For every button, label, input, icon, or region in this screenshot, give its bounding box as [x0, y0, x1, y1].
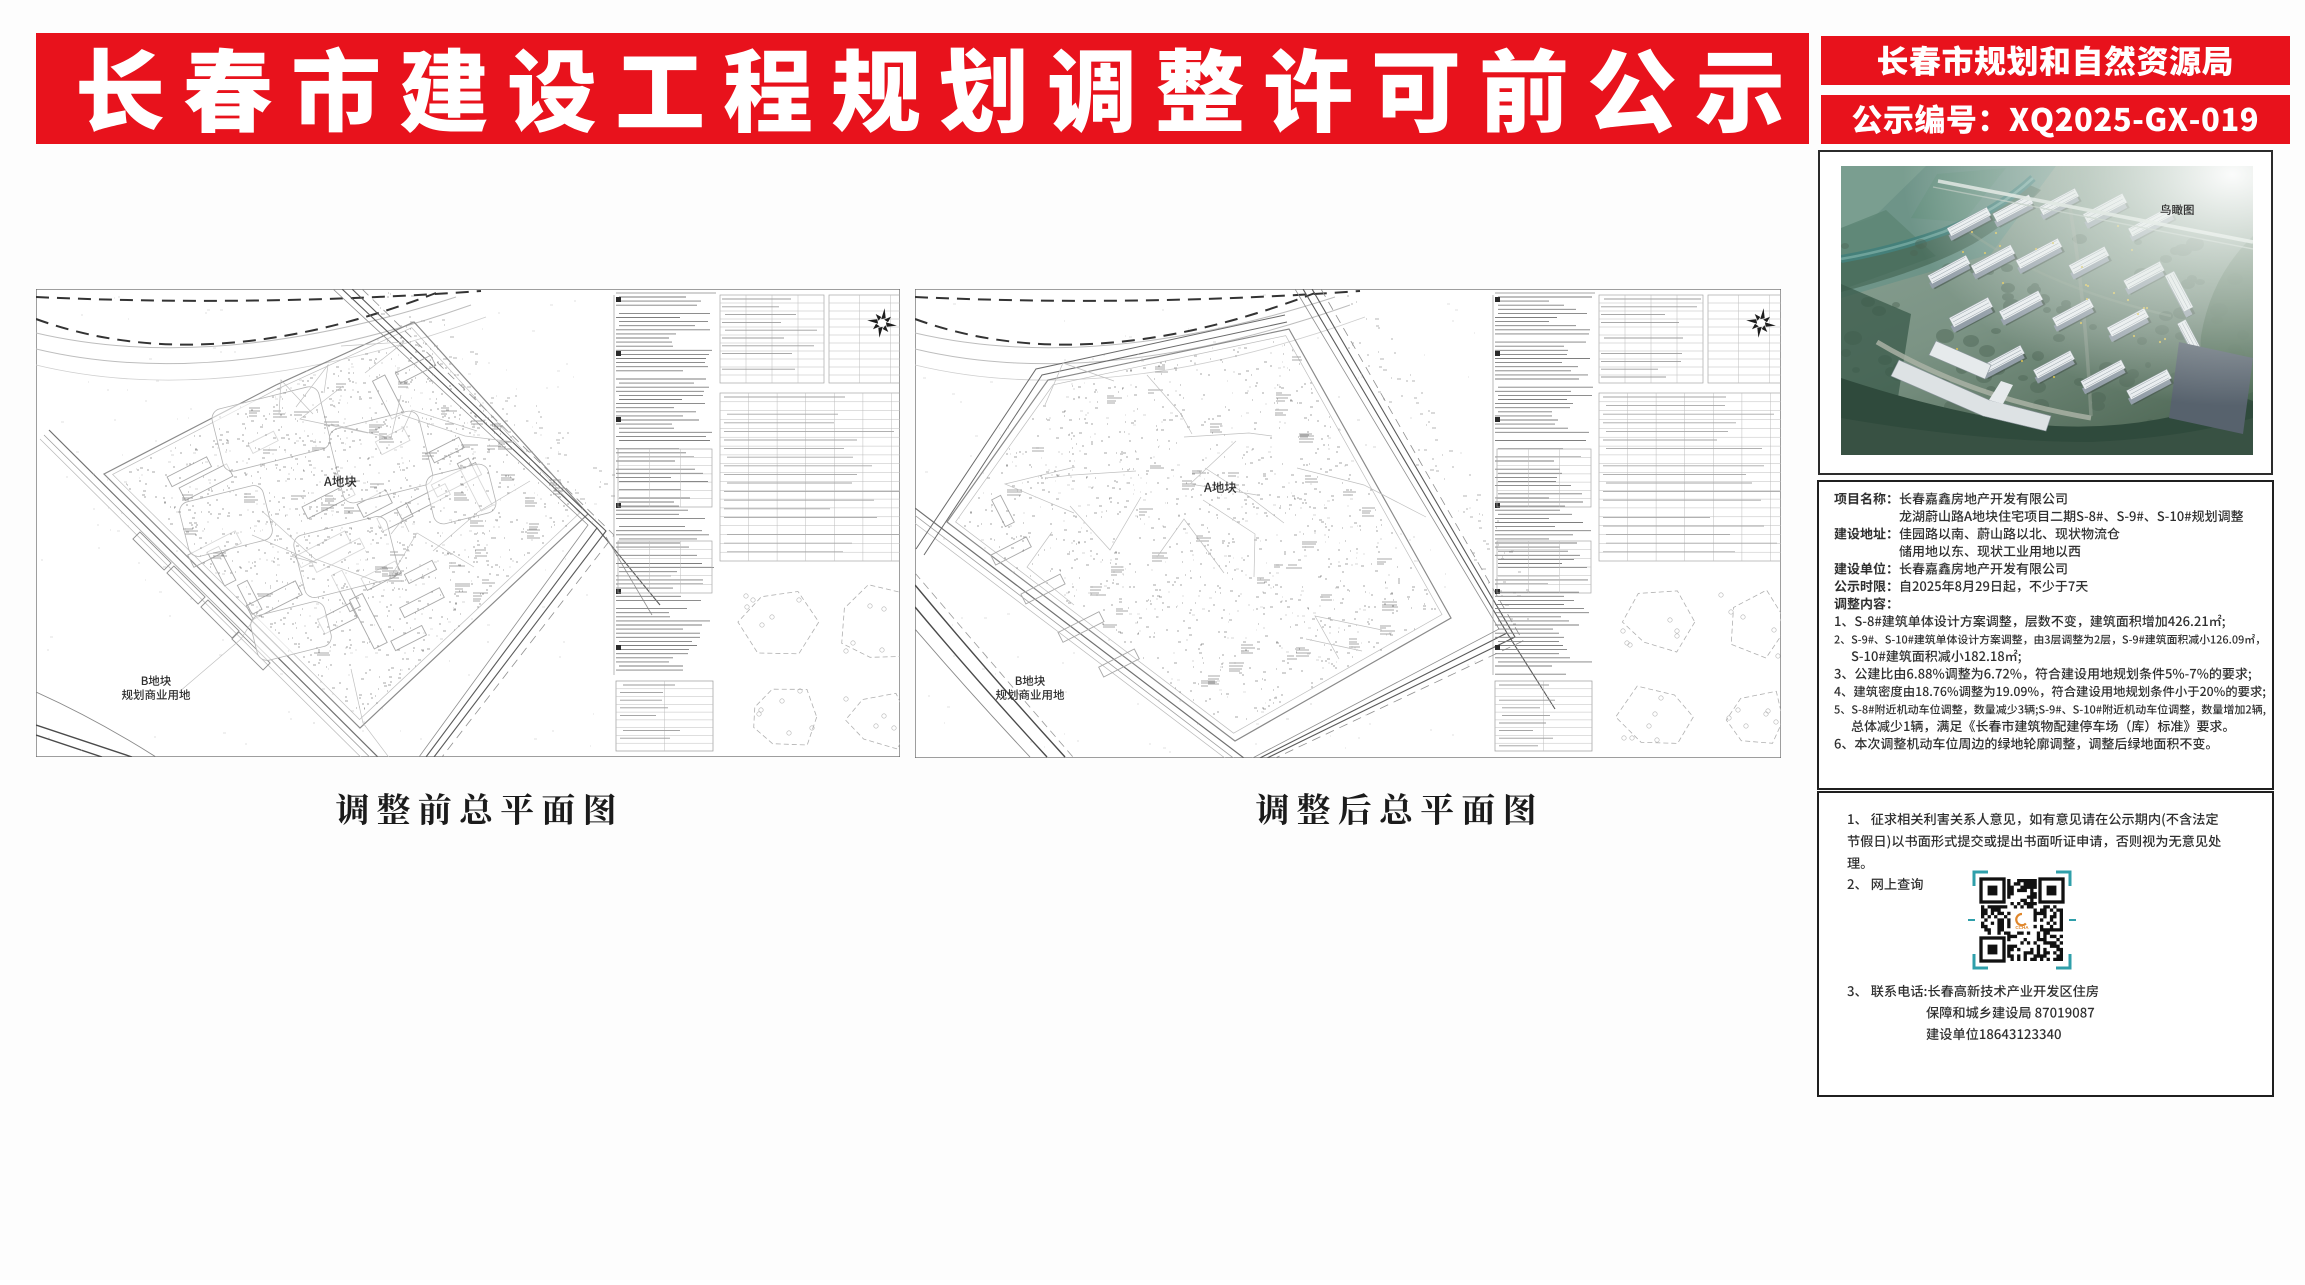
- svg-text:CCHA: CCHA: [2015, 925, 2029, 930]
